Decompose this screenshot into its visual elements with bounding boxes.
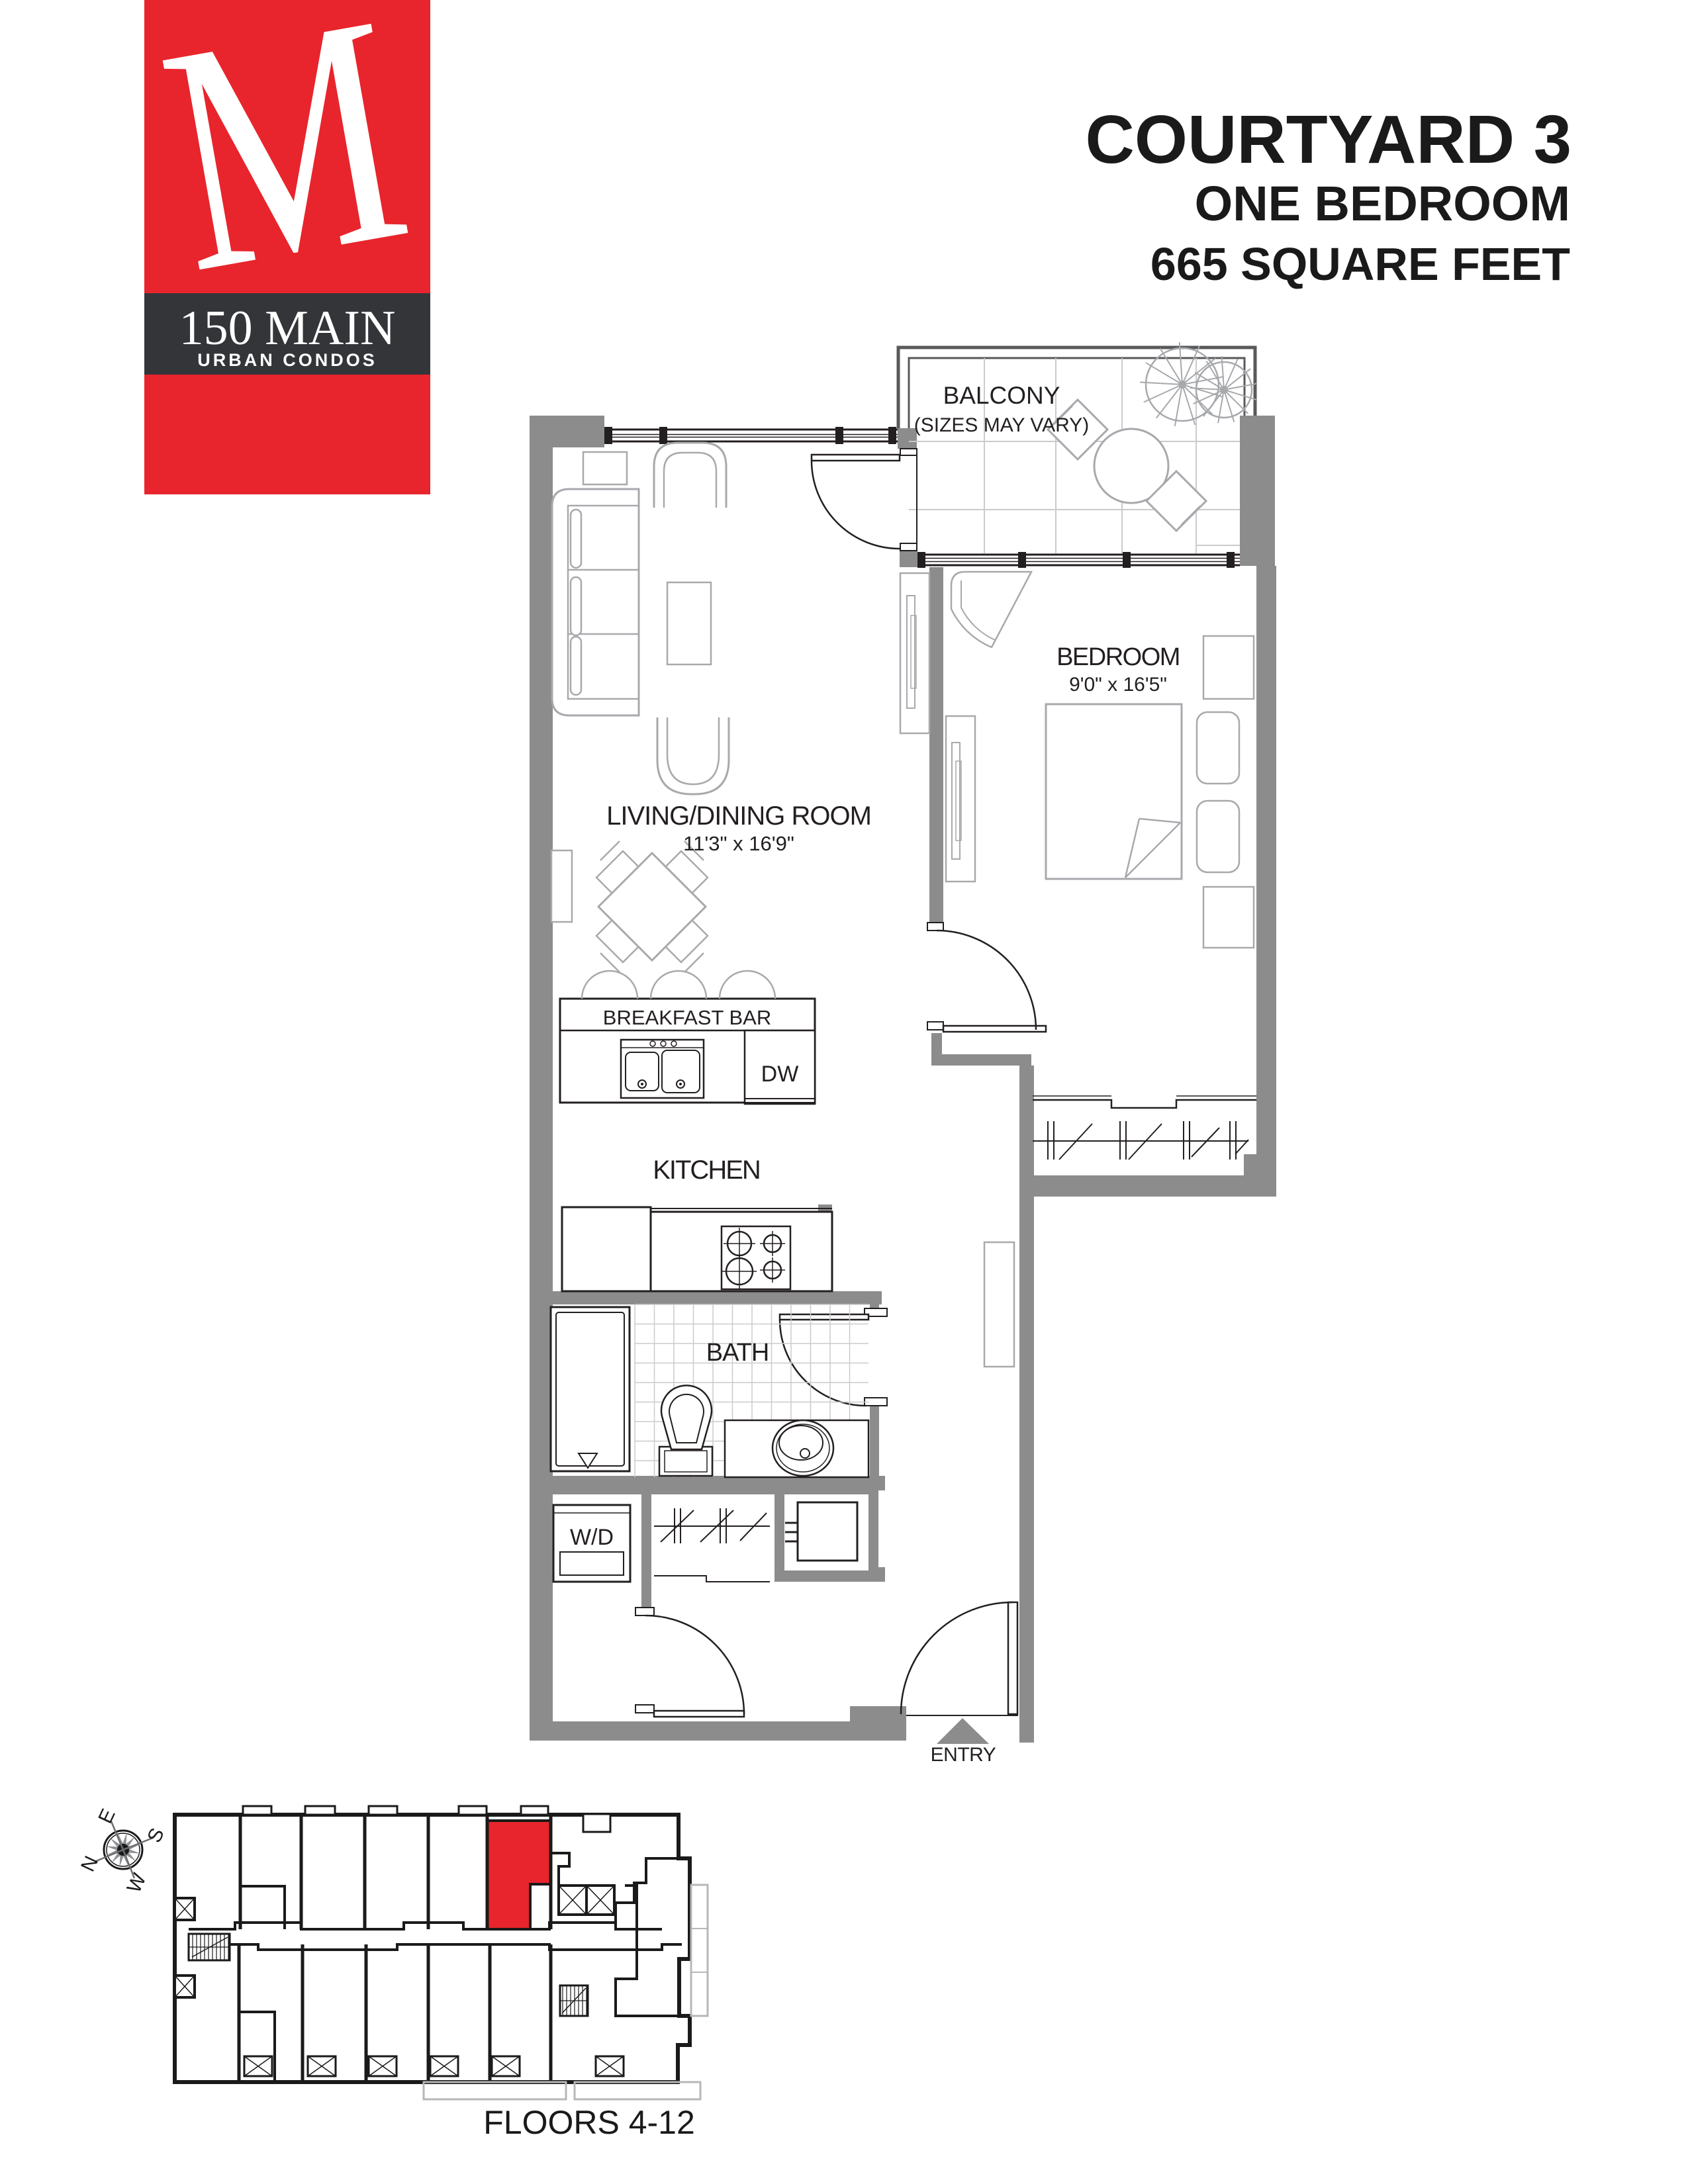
svg-text:BREAKFAST BAR: BREAKFAST BAR xyxy=(603,1006,771,1029)
svg-text:FLOORS 4-12: FLOORS 4-12 xyxy=(483,2104,695,2141)
svg-text:KITCHEN: KITCHEN xyxy=(653,1156,760,1185)
svg-text:URBAN CONDOS: URBAN CONDOS xyxy=(197,350,377,370)
svg-text:ONE BEDROOM: ONE BEDROOM xyxy=(1195,176,1570,231)
svg-text:150 MAIN: 150 MAIN xyxy=(179,301,396,355)
svg-text:BEDROOM: BEDROOM xyxy=(1056,643,1180,671)
svg-text:BATH: BATH xyxy=(706,1339,769,1367)
svg-text:BALCONY: BALCONY xyxy=(943,382,1060,409)
svg-text:LIVING/DINING ROOM: LIVING/DINING ROOM xyxy=(606,801,871,831)
svg-text:COURTYARD 3: COURTYARD 3 xyxy=(1086,101,1571,177)
svg-text:11'3" x 16'9": 11'3" x 16'9" xyxy=(683,832,794,855)
svg-text:DW: DW xyxy=(761,1062,799,1087)
svg-text:W/D: W/D xyxy=(570,1525,614,1550)
svg-text:ENTRY: ENTRY xyxy=(931,1744,996,1766)
svg-text:(SIZES MAY VARY): (SIZES MAY VARY) xyxy=(914,414,1090,436)
svg-text:665 SQUARE FEET: 665 SQUARE FEET xyxy=(1150,238,1570,290)
svg-text:9'0" x 16'5": 9'0" x 16'5" xyxy=(1069,674,1167,696)
